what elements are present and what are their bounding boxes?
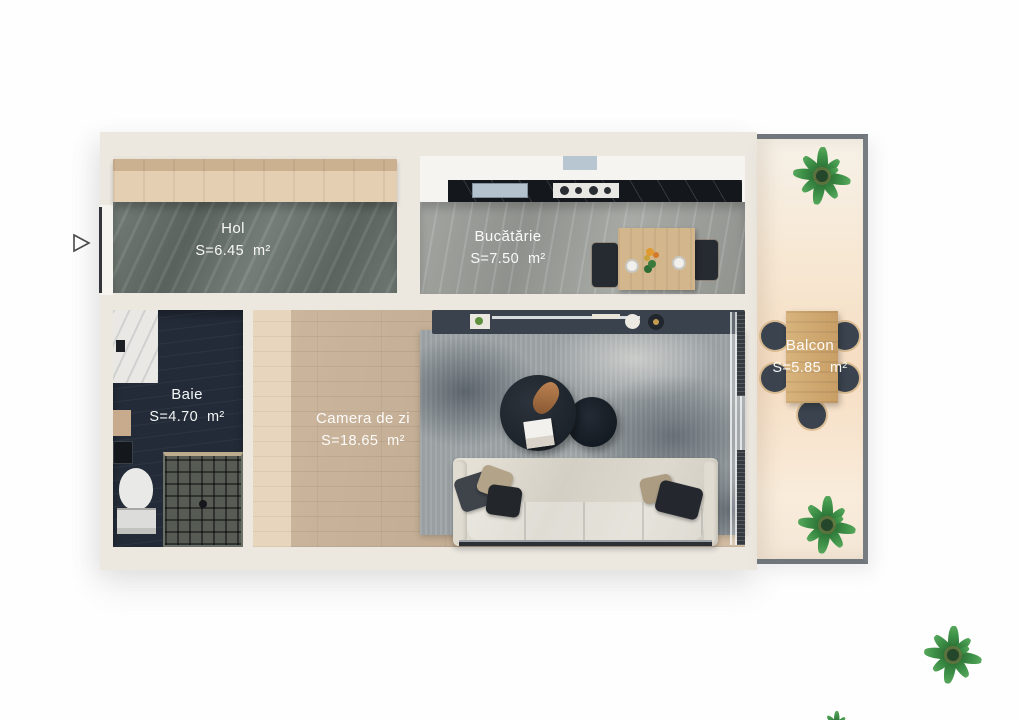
room-label-baie: Baie S=4.70 m² — [127, 384, 247, 428]
curtain-drape — [737, 450, 745, 545]
toilet-bowl — [119, 468, 153, 510]
apartment-outline: Hol S=6.45 m² — [100, 132, 757, 570]
room-hol: Hol S=6.45 m² — [113, 156, 397, 293]
tv-console — [432, 310, 745, 334]
console-tray — [592, 314, 620, 319]
entrance-arrow-icon — [70, 233, 92, 253]
shower-drain — [199, 500, 207, 508]
room-balcon: Balcon S=5.85 m² — [757, 134, 868, 564]
room-name-camera-de-zi: Camera de zi — [263, 408, 463, 431]
toilet-tank — [117, 508, 156, 534]
range-hood — [563, 156, 597, 170]
throw-pillow — [485, 484, 523, 518]
room-label-balcon: Balcon S=5.85 m² — [757, 335, 863, 379]
room-label-hol: Hol S=6.45 m² — [153, 218, 313, 262]
room-area-baie: S=4.70 m² — [127, 407, 247, 429]
table-plant — [819, 708, 854, 720]
room-area-camera-de-zi: S=18.65 m² — [263, 431, 463, 453]
potted-plant — [787, 141, 857, 211]
room-label-bucatarie: Bucătărie S=7.50 m² — [428, 226, 588, 270]
shower — [163, 452, 243, 547]
balcony-chair — [798, 401, 826, 429]
kitchen-sink — [472, 183, 528, 198]
bath-cabinet — [113, 441, 133, 464]
burner — [560, 186, 569, 195]
floorplan-canvas: Hol S=6.45 m² — [0, 0, 1018, 720]
cooktop — [553, 183, 619, 198]
burner — [575, 187, 582, 194]
room-label-camera-de-zi: Camera de zi S=18.65 m² — [263, 408, 463, 452]
sofa-armrest — [704, 460, 718, 544]
kitchen-counter — [448, 180, 742, 202]
bathroom-vanity — [113, 310, 158, 383]
room-bucatarie: Bucătărie S=7.50 m² — [420, 156, 745, 294]
room-area-bucatarie: S=7.50 m² — [428, 249, 588, 271]
room-name-baie: Baie — [127, 384, 247, 407]
plate — [672, 256, 686, 270]
magazine — [523, 418, 554, 449]
wardrobe — [113, 159, 397, 202]
room-area-balcon: S=5.85 m² — [757, 358, 863, 380]
room-baie: Baie S=4.70 m² — [113, 310, 243, 547]
sofa-base-trim — [459, 540, 712, 546]
room-area-hol: S=6.45 m² — [153, 241, 313, 263]
console-bowl — [625, 314, 640, 329]
potted-plant — [792, 490, 862, 560]
potted-plant — [921, 623, 985, 687]
room-name-bucatarie: Bucătărie — [428, 226, 588, 249]
room-name-hol: Hol — [153, 218, 313, 241]
entrance-door — [99, 207, 102, 293]
burner — [589, 186, 598, 195]
console-decor-box — [470, 314, 490, 329]
room-name-balcon: Balcon — [757, 335, 863, 358]
room-camera-de-zi: Camera de zi S=18.65 m² — [253, 310, 745, 547]
burner — [604, 187, 611, 194]
plate — [625, 259, 639, 273]
toilet — [117, 468, 156, 536]
dining-chair — [592, 243, 618, 287]
curtain-drape — [737, 312, 745, 396]
console-dish — [648, 314, 664, 330]
table-flowers — [646, 248, 654, 256]
dining-chair — [693, 240, 718, 280]
